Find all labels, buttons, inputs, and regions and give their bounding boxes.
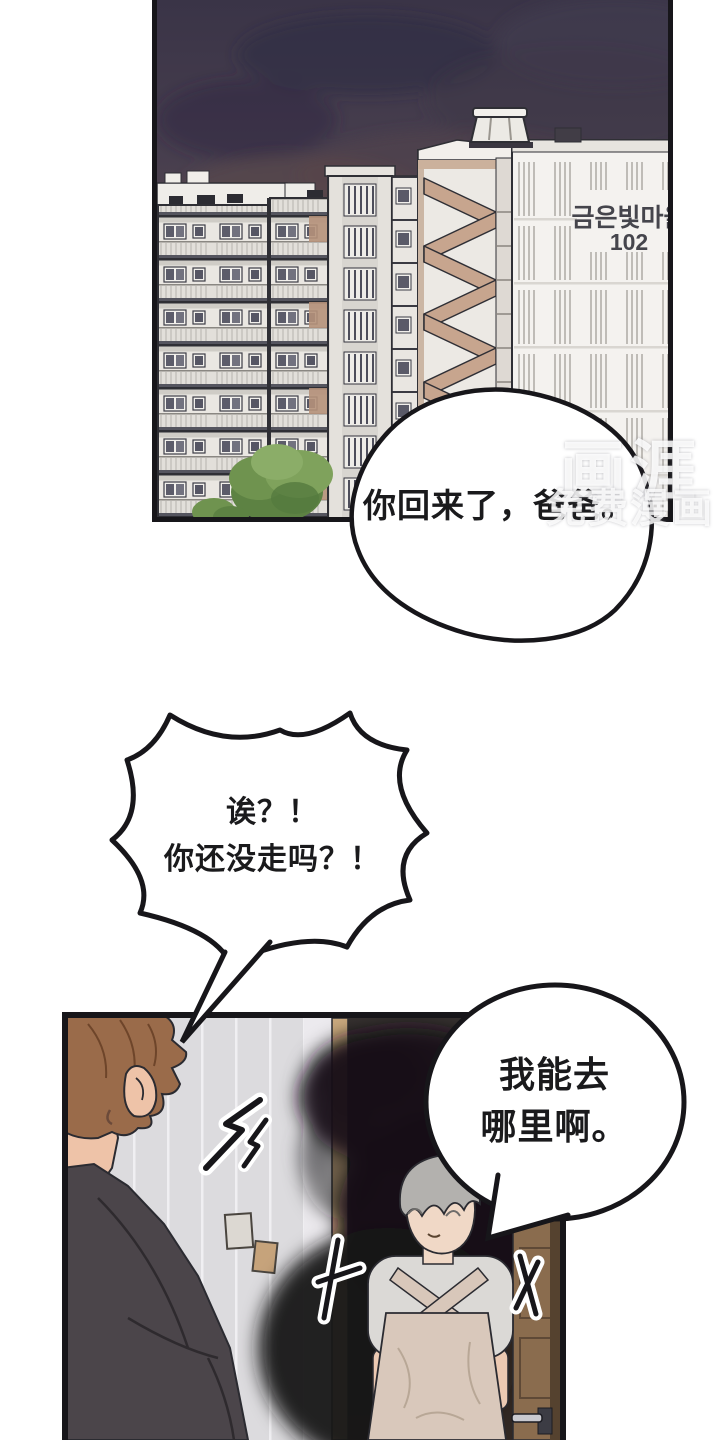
picture-frame <box>225 1213 253 1249</box>
burst-bubble-line2: 你还没走吗？！ <box>100 836 445 883</box>
small-box <box>252 1241 277 1273</box>
apron <box>368 1313 506 1440</box>
speech-bubble-3-line2: 哪里啊。 <box>432 1101 677 1153</box>
burst-bubble-text: 诶？！ 你还没走吗？！ <box>100 789 445 883</box>
speech-bubble-3-line1: 我能去 <box>432 1049 677 1101</box>
burst-bubble-line1: 诶？！ <box>100 789 445 836</box>
building-sign-line2: 102 <box>610 229 648 255</box>
comic-page: { "page": { "width": 720, "height": 1440… <box>0 0 720 1440</box>
speech-bubble-1-text: 你回来了，爸爸。 <box>348 486 650 526</box>
building-sign-line1: 금은빛마을 <box>571 204 673 232</box>
speech-bubble-3-text: 我能去 哪里啊。 <box>432 1049 677 1153</box>
